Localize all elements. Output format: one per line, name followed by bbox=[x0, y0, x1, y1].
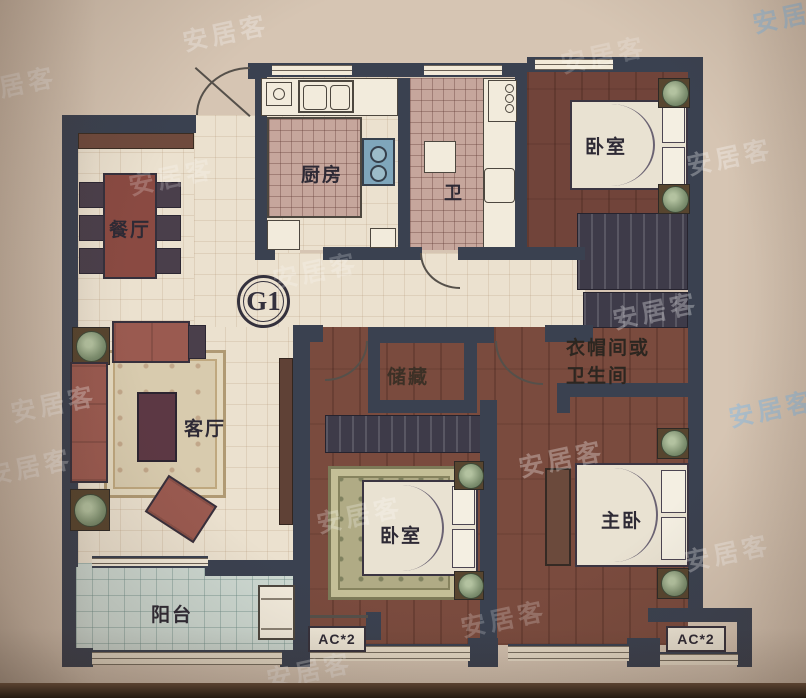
balcony-sliding-door bbox=[92, 556, 208, 568]
living-side-table bbox=[188, 325, 206, 359]
pillow bbox=[661, 517, 686, 560]
watermark: 安居客 bbox=[179, 5, 272, 58]
wall-living-right bbox=[293, 333, 310, 565]
dining-chair bbox=[79, 248, 104, 274]
watermark: 安居客 bbox=[0, 57, 60, 110]
room-label-balcony: 阳台 bbox=[151, 600, 193, 627]
watermark: 安居客 bbox=[749, 0, 806, 41]
watermark: 安居客 bbox=[725, 381, 806, 434]
wall-bedroom-mid-right bbox=[480, 400, 497, 646]
wall-top-left bbox=[62, 115, 196, 133]
room-label-bedroom-mid: 卧室 bbox=[380, 521, 422, 548]
bedroom-mid-closet bbox=[325, 415, 497, 453]
room-label-bath: 卫 bbox=[444, 179, 464, 205]
sill-balcony-bottom bbox=[92, 650, 282, 665]
wall-ac-right-side bbox=[737, 608, 752, 667]
stove-burner-1 bbox=[370, 146, 387, 163]
dining-chair bbox=[156, 248, 181, 274]
plant-icon bbox=[662, 186, 689, 213]
cloakroom-closet bbox=[583, 292, 688, 328]
ac-box-left: AC*2 bbox=[308, 626, 366, 652]
room-label-cloak-line1: 衣帽间或 bbox=[566, 333, 650, 360]
pillow bbox=[452, 529, 475, 568]
corner-bedroom-mid-left bbox=[280, 650, 310, 667]
room-label-cloak-line2: 卫生间 bbox=[566, 361, 629, 388]
living-coffee-table bbox=[137, 392, 177, 462]
ac-box-right: AC*2 bbox=[666, 626, 726, 652]
master-dresser bbox=[545, 468, 571, 566]
window-kitchen-top bbox=[272, 63, 352, 77]
balcony-washer bbox=[258, 585, 295, 640]
unit-badge-label: G1 bbox=[246, 286, 281, 317]
wall-living-balcony bbox=[205, 560, 295, 576]
room-label-master: 主卧 bbox=[601, 506, 643, 533]
room-label-bedroom-top: 卧室 bbox=[585, 132, 627, 159]
heater-knob-2 bbox=[505, 94, 514, 103]
room-label-dining: 餐厅 bbox=[109, 215, 151, 242]
window-bath-top bbox=[424, 63, 502, 77]
plant-icon bbox=[661, 430, 688, 457]
wall-kitchen-bath-divider bbox=[398, 78, 410, 253]
room-label-storage: 储藏 bbox=[387, 362, 429, 389]
room-label-living: 客厅 bbox=[184, 414, 226, 441]
stove-burner-2 bbox=[370, 165, 387, 182]
room-label-kitchen: 厨房 bbox=[301, 160, 343, 187]
bath-sink bbox=[424, 141, 456, 173]
bedroom-top-wardrobe bbox=[577, 213, 688, 290]
corner-balcony-left bbox=[62, 648, 93, 667]
kitchen-burner-dot bbox=[273, 88, 285, 100]
photo-bottom-edge bbox=[0, 683, 806, 698]
dining-chair bbox=[156, 215, 181, 241]
pillow bbox=[452, 486, 475, 525]
wall-right-lower bbox=[688, 300, 703, 622]
dining-chair bbox=[156, 182, 181, 208]
heater-knob-1 bbox=[505, 84, 514, 93]
plant-icon bbox=[458, 463, 484, 489]
plant-icon bbox=[661, 570, 688, 597]
wall-right-upper bbox=[688, 57, 703, 302]
plant-icon bbox=[662, 80, 689, 107]
pillow bbox=[662, 105, 685, 143]
sill-master-bottom bbox=[508, 644, 629, 661]
washer-line bbox=[261, 628, 292, 630]
washer-line bbox=[261, 598, 292, 600]
plant-icon bbox=[458, 573, 484, 599]
window-bedroom-top bbox=[535, 57, 613, 72]
heater-knob-3 bbox=[505, 104, 514, 113]
floorplan-photo: AC*2 AC*2 G1 餐厅 厨房 卫 卧室 客厅 储藏 衣帽间或 卫生间 卧… bbox=[0, 0, 806, 698]
ac-right-label: AC*2 bbox=[677, 631, 714, 647]
plant-icon bbox=[74, 494, 107, 527]
wall-storage-bottom bbox=[368, 400, 477, 413]
kitchen-small-box bbox=[370, 228, 396, 248]
wall-ac-left-side bbox=[366, 612, 381, 640]
dining-chair bbox=[79, 182, 104, 208]
unit-badge: G1 bbox=[237, 275, 290, 328]
ac-left-top-line bbox=[310, 615, 368, 618]
pillow bbox=[661, 470, 686, 513]
living-sofa-left bbox=[70, 362, 108, 483]
kitchen-cabinet-low bbox=[267, 220, 300, 250]
living-sofa-top bbox=[112, 321, 190, 363]
dining-sideboard bbox=[78, 133, 194, 149]
corner-master-mid bbox=[627, 638, 660, 667]
living-tv-cabinet bbox=[279, 358, 293, 525]
corner-bedroom-mid-right bbox=[468, 638, 498, 667]
bath-toilet bbox=[484, 168, 515, 203]
sill-ac-right bbox=[660, 652, 738, 665]
pillow bbox=[662, 147, 685, 185]
wall-bath-bottom-b bbox=[458, 247, 585, 260]
dining-chair bbox=[79, 215, 104, 241]
wall-kitchen-bottom-b bbox=[323, 247, 410, 260]
ac-left-label: AC*2 bbox=[318, 631, 355, 647]
entry-floor bbox=[194, 115, 262, 255]
kitchen-sink-bowl-left bbox=[303, 85, 327, 110]
kitchen-sink-bowl-right bbox=[330, 85, 350, 110]
plant-icon bbox=[76, 331, 107, 362]
